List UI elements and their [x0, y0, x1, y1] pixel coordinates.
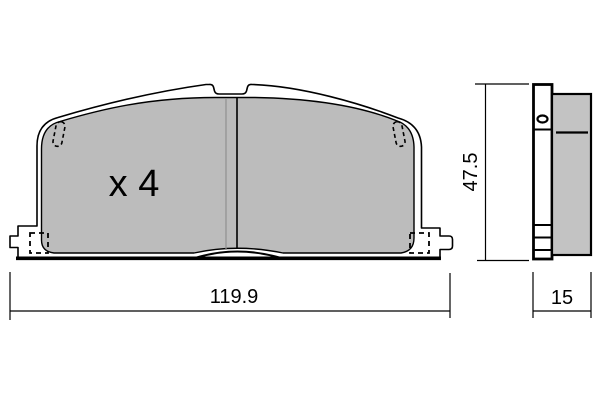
drawing-canvas: x 4 119.9	[0, 0, 600, 400]
side-plate-hole	[538, 116, 548, 123]
quantity-label: x 4	[109, 163, 160, 205]
side-friction-material	[552, 94, 591, 255]
brake-pad-technical-drawing: x 4 119.9	[0, 0, 600, 400]
thickness-dimension-label: 15	[551, 287, 573, 309]
dimension-height: 47.5	[460, 84, 529, 261]
side-backing-plate	[534, 85, 553, 260]
front-view: x 4	[10, 84, 453, 258]
side-view	[534, 85, 592, 260]
width-dimension-label: 119.9	[210, 286, 259, 308]
friction-material	[42, 98, 415, 254]
dimension-width: 119.9	[10, 272, 450, 320]
dimension-thickness: 15	[533, 272, 591, 318]
height-dimension-label: 47.5	[460, 153, 482, 192]
